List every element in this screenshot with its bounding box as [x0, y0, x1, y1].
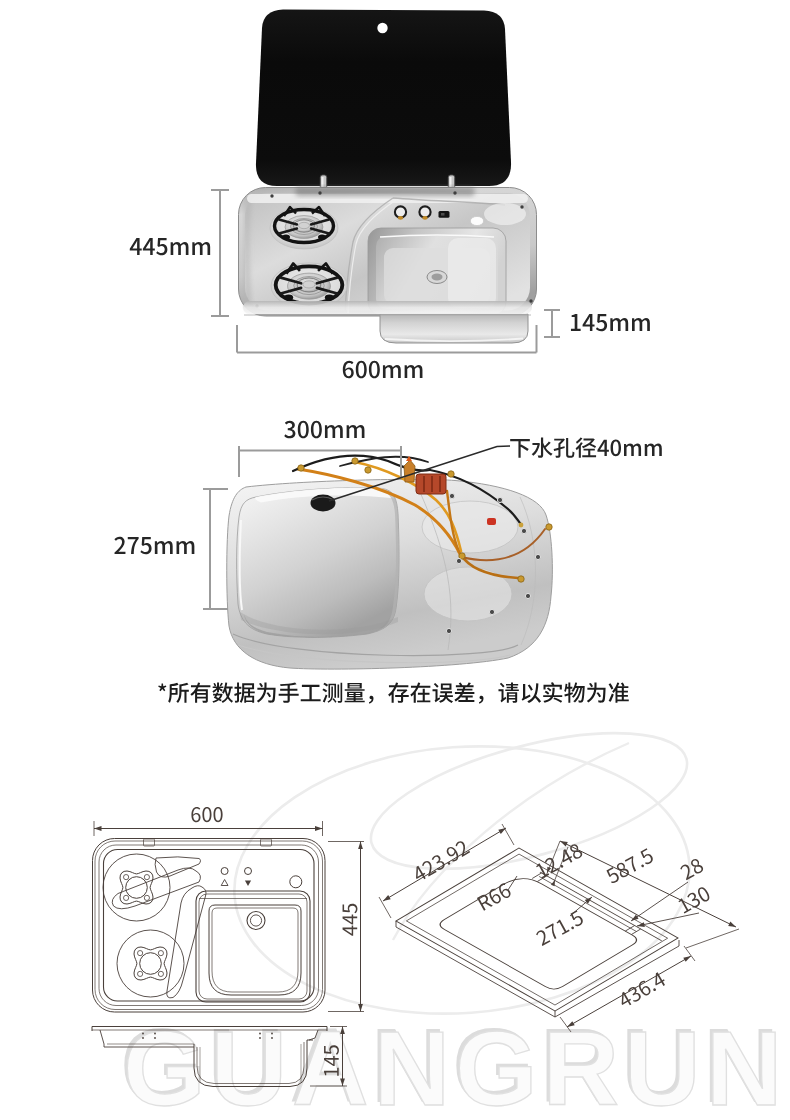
svg-text:GUANGRUN: GUANGRUN — [123, 1009, 787, 1120]
